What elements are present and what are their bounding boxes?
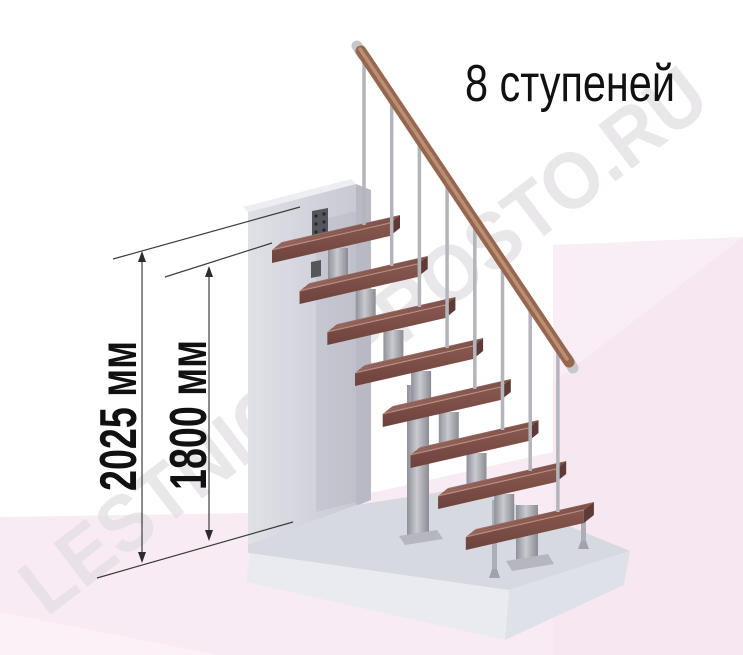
wall-mount-plate-lower [311, 260, 321, 278]
dimension-label-1800: 1800 мм [160, 340, 218, 490]
dimension-label-2025: 2025 мм [90, 341, 148, 491]
staircase-diagram: LESTNICA-PROSTO.RU [0, 0, 743, 655]
page-title: 8 ступеней [465, 55, 675, 113]
